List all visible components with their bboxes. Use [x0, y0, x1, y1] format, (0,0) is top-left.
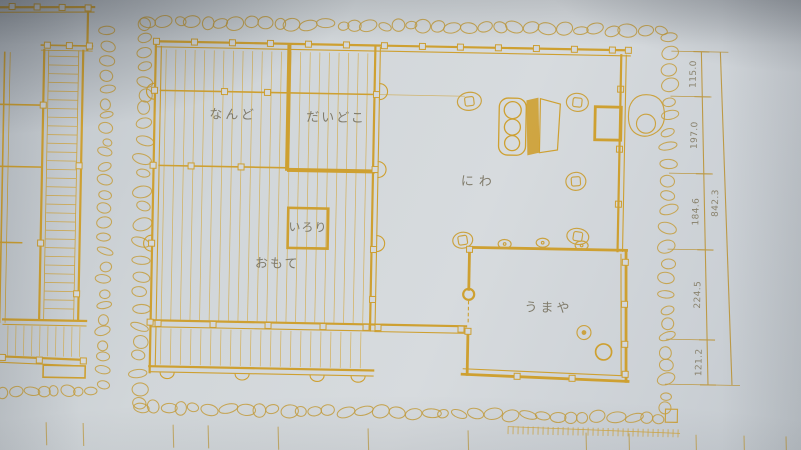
overall-dimension-line [714, 52, 738, 385]
column-base [310, 375, 324, 381]
door-arc [379, 84, 387, 100]
column-base [351, 376, 365, 382]
dim-label-segment-5: 121.2 [694, 348, 705, 376]
well-icon [628, 94, 665, 136]
column-base [160, 372, 174, 378]
stepping-stone-icon [565, 92, 589, 112]
room-label-irori: いろり [288, 220, 327, 235]
stone-wall-border [0, 9, 683, 427]
room-label-nando: なんど [209, 106, 257, 122]
photographed-floor-plan-page: なんど だいどこ いろり おもて にわ うまや 115.0 197.0 184.… [0, 0, 801, 450]
stepping-stone-icon [566, 227, 590, 246]
room-divider-wall [287, 46, 289, 169]
east-wall [618, 55, 622, 251]
column-base [235, 374, 249, 380]
veranda-rail [39, 50, 44, 319]
entry-step [43, 365, 85, 378]
stable-east-wall [624, 250, 629, 381]
niwa-area [451, 52, 665, 254]
stone-icon [536, 238, 549, 247]
tub-icon [595, 344, 611, 360]
floor-plan-drawing: なんど だいどこ いろり おもて にわ うまや 115.0 197.0 184.… [0, 0, 801, 450]
well-icon [636, 114, 655, 133]
room-label-omote: おもて [255, 255, 300, 271]
north-wall [155, 41, 630, 50]
adjacent-plan-fragment [0, 3, 94, 378]
dim-label-segment-3: 184.6 [691, 198, 702, 226]
door-arc [376, 236, 384, 252]
main-house [141, 38, 631, 387]
dim-label-segment-2: 197.0 [690, 121, 701, 149]
stepping-stone-icon [565, 172, 586, 191]
water-basin [595, 107, 622, 140]
dimension-lines: 115.0 197.0 184.6 224.5 121.2 842.3 [665, 51, 746, 385]
dim-label-overall: 842.3 [711, 189, 722, 217]
veranda-floorboards [7, 325, 80, 356]
next-figure-edge [508, 426, 680, 437]
bottom-extension-ticks [46, 422, 787, 450]
veranda-floorboards [160, 328, 361, 368]
room-label-daidoko: だいどこ [306, 109, 366, 125]
walkway [375, 325, 466, 327]
kamado-stove-icon [498, 97, 560, 156]
veranda-wall [150, 320, 375, 324]
door-arc [378, 162, 386, 178]
dim-label-segment-1: 115.0 [689, 60, 700, 88]
veranda-floorboards [44, 56, 78, 309]
room-label-umaya: うまや [524, 299, 572, 315]
stable-north-wall [470, 247, 627, 250]
room-label-niwa: にわ [461, 173, 497, 189]
stone-gate-post [665, 409, 677, 422]
south-wall [149, 366, 373, 370]
stepping-stone-icon [456, 91, 482, 112]
dim-label-segment-4: 224.5 [693, 281, 704, 309]
east-wall-of-rooms [370, 47, 375, 330]
